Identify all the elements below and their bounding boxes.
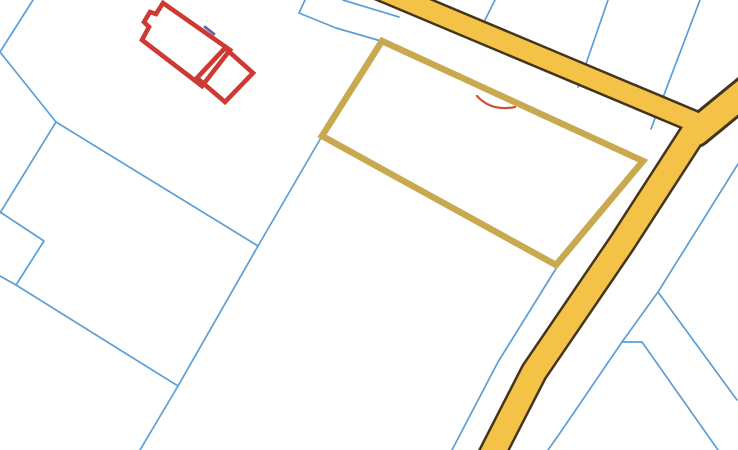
parcel-boundary-line-left-step bbox=[0, 212, 44, 285]
parcel-boundary-line-edge-topleft bbox=[0, 0, 56, 122]
parcel-boundary-line-j1-to-leftedge bbox=[0, 122, 56, 213]
parcel-boundary-line-left-diagonal bbox=[0, 276, 178, 386]
parcel-boundary-line-right-branch bbox=[658, 292, 737, 400]
map-canvas[interactable] bbox=[0, 0, 738, 450]
cadastral-map[interactable] bbox=[0, 0, 738, 450]
building-outline bbox=[142, 3, 253, 102]
parcel-boundary-line-top-to-parcel bbox=[299, 0, 381, 41]
parcel-boundary-line-j2-to-bottom bbox=[140, 246, 258, 450]
road-network bbox=[350, 0, 738, 450]
parcel-boundary-line-parcelcorner-to-j2 bbox=[258, 136, 322, 246]
parcel-boundary-line-right-jog bbox=[622, 342, 718, 450]
building-main bbox=[142, 3, 230, 86]
road-south-surface bbox=[490, 127, 697, 450]
parcel-boundary-line-j1-to-j2 bbox=[56, 122, 258, 246]
